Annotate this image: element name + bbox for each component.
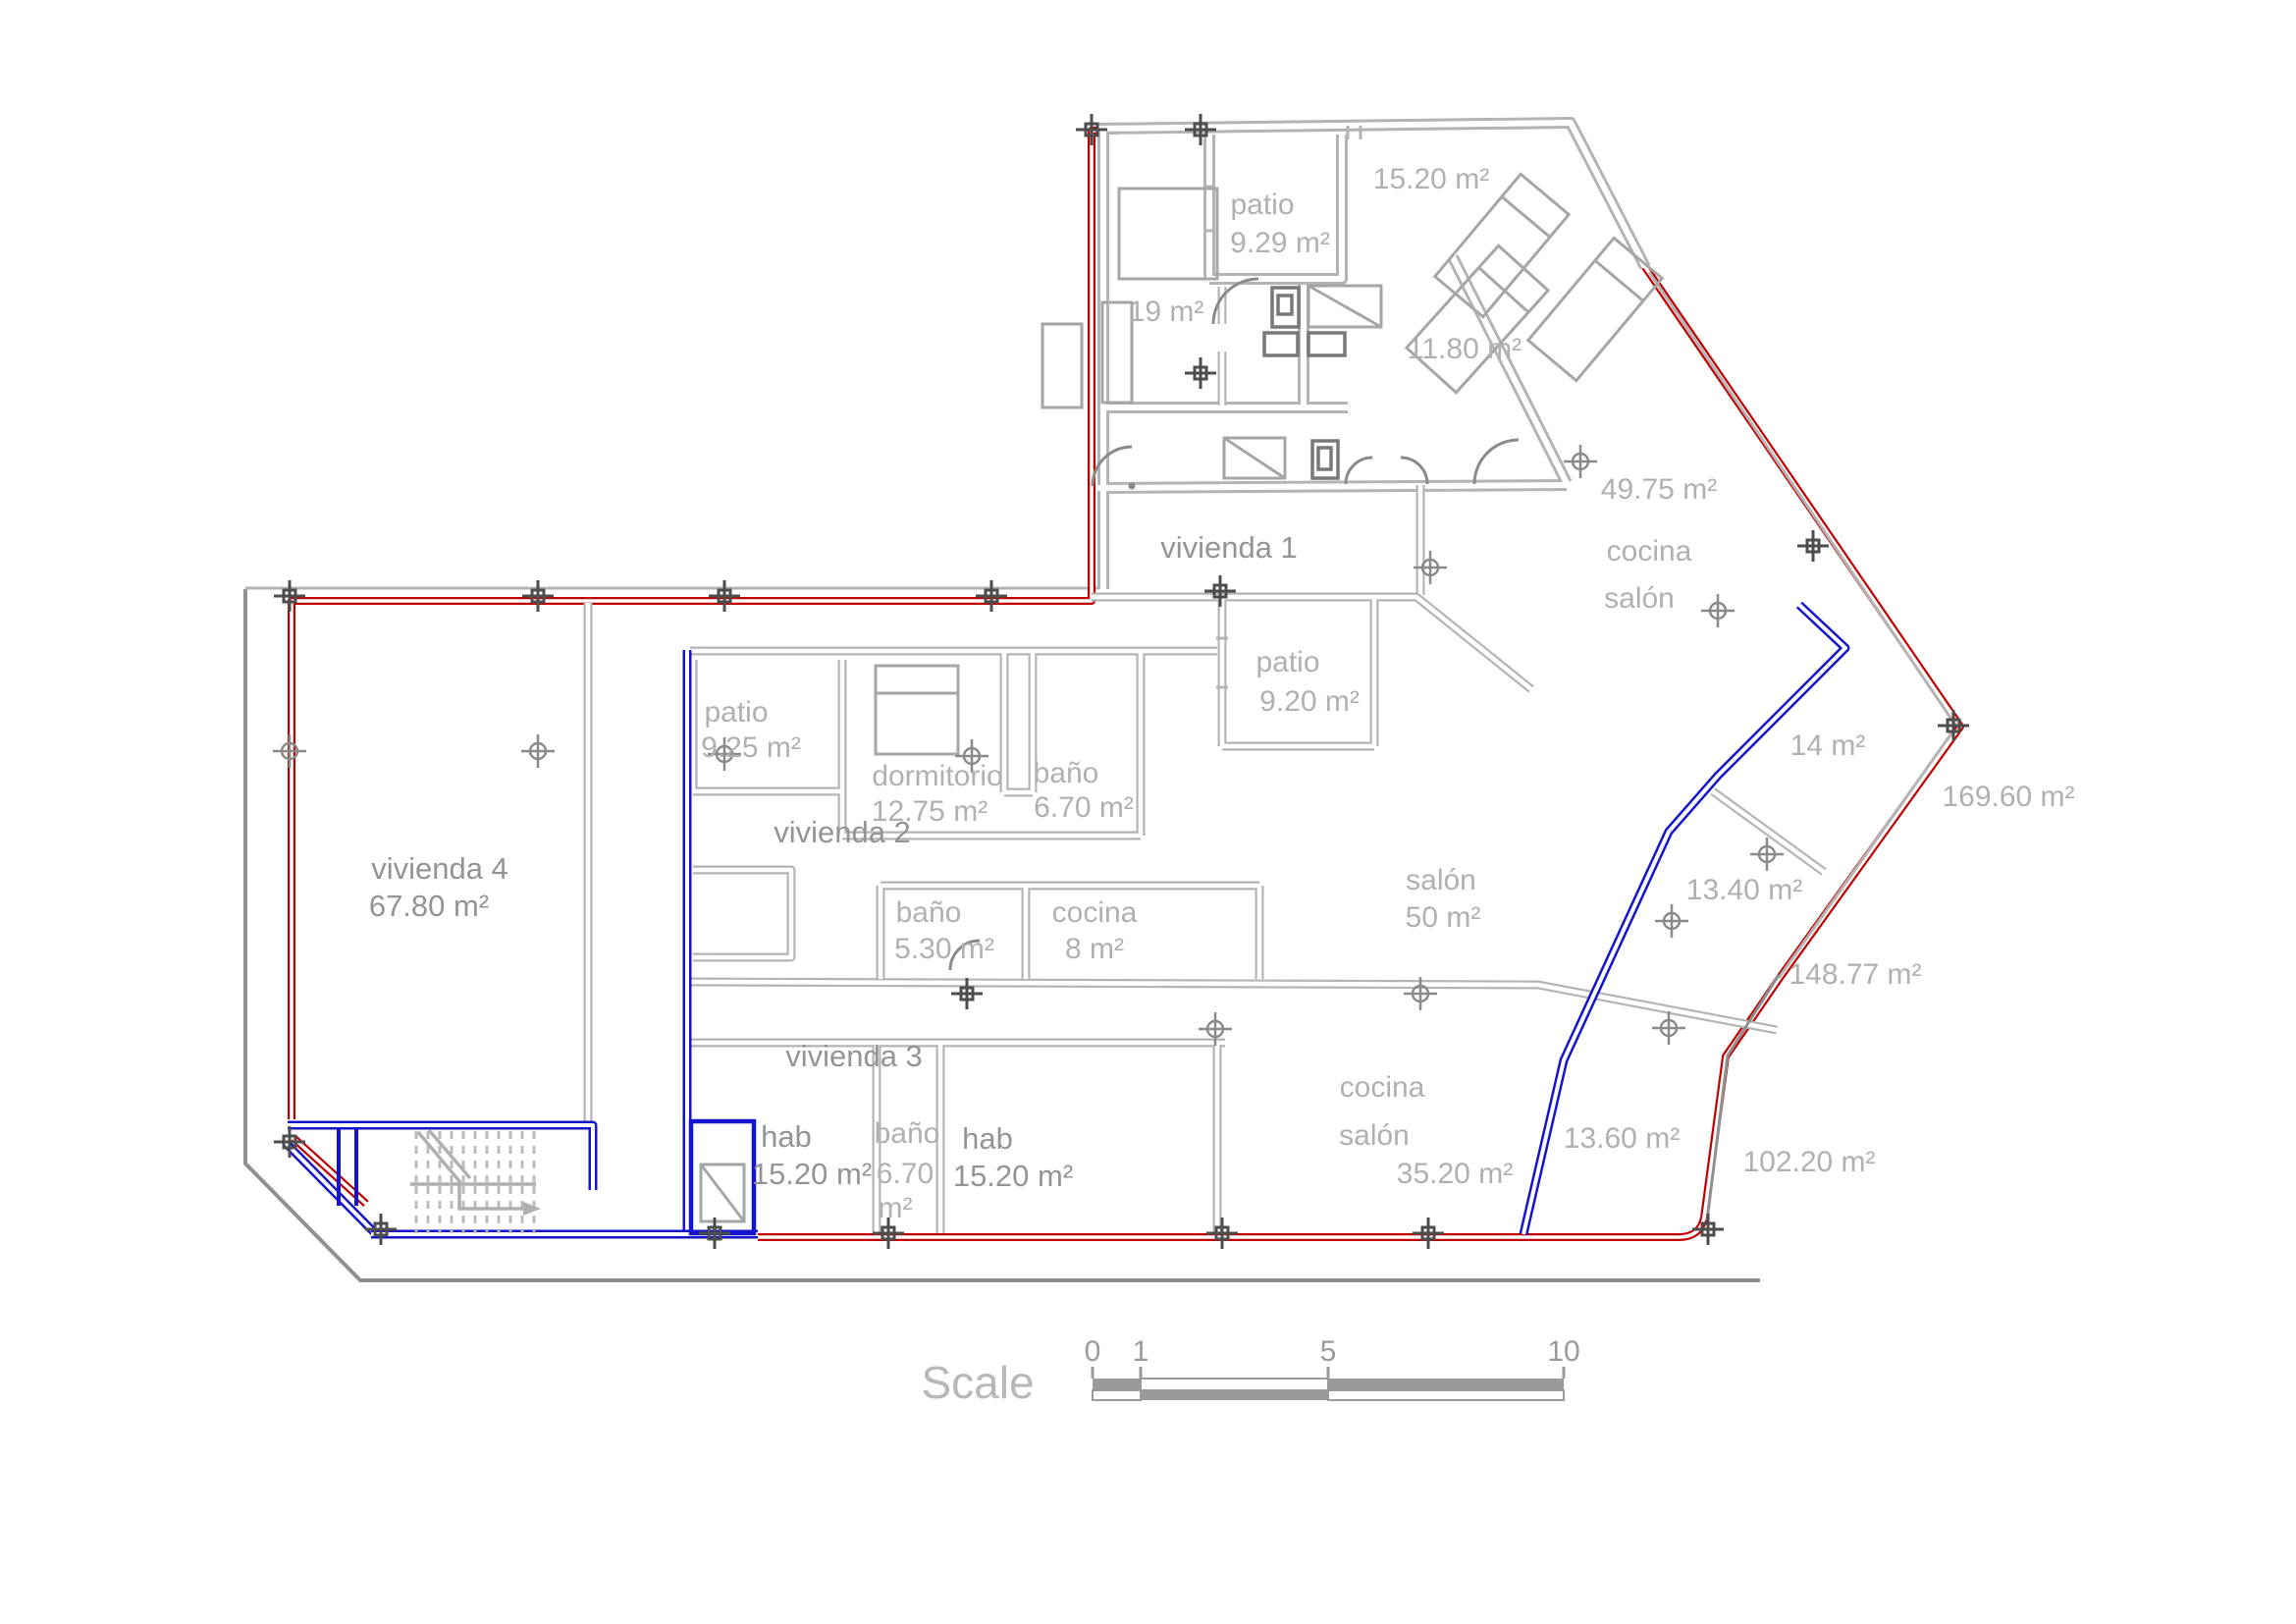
label-salon50-area: 50 m² [1406,901,1481,934]
survey-markers [273,114,1969,1249]
label-parcel-1340: 13.40 m² [1686,874,1802,906]
label-v3-bano: baño [875,1117,940,1150]
label-salon50-name: salón [1406,864,1476,896]
scale-bar: Scale 0 1 5 10 [921,1335,1579,1408]
sink [1264,333,1298,355]
scale-title: Scale [921,1357,1034,1408]
label-v2-dormitorio: dormitorio [872,760,1002,792]
scale-segment [1093,1379,1141,1390]
label-parcel-10220: 102.20 m² [1742,1146,1875,1178]
label-v3-hab1: hab [761,1119,812,1154]
label-v3-salon: salón [1339,1119,1410,1152]
label-v2-patio-area: 9.25 m² [701,731,801,764]
scale-segment [1328,1379,1564,1390]
label-v3-bano-area: 6.70 [877,1158,934,1190]
label-v1-patio2-area: 9.20 m² [1259,685,1360,718]
label-parcel-14877: 148.77 m² [1789,958,1921,991]
room-labels: patio 9.29 m² 15.20 m² 19 m² 11.80 m² 49… [369,163,1866,1224]
label-v1-patio-name: patio [1230,189,1294,221]
label-parcel-16960: 169.60 m² [1942,781,2074,813]
scale-tick-5: 5 [1320,1335,1337,1368]
label-parcel-1360: 13.60 m² [1564,1122,1680,1155]
label-room-14: 14 m² [1790,730,1866,762]
bed [876,666,958,754]
bed-tilted [1407,245,1548,393]
floor-plan-drawing: patio 9.29 m² 15.20 m² 19 m² 11.80 m² 49… [0,0,2296,1624]
label-v1-patio2-name: patio [1255,646,1319,678]
bed [1119,189,1217,279]
label-v2-bano2-area: 5.30 m² [894,933,994,965]
toilet [1272,288,1299,327]
label-v2-bano2: baño [896,896,962,929]
label-v1-area: 49.75 m² [1601,473,1717,506]
scale-tick-1: 1 [1133,1335,1149,1368]
label-v2-patio-name: patio [704,696,768,729]
stair-direction-arrow [523,1202,541,1216]
label-v2-cocina-area: 8 m² [1065,933,1124,965]
label-v3-area: 35.20 m² [1397,1158,1513,1190]
red-perimeter [292,124,1960,1237]
sink [1308,333,1345,355]
scale-segment [1141,1390,1328,1400]
label-v3-hab1-area: 15.20 m² [752,1157,872,1191]
scale-tick-0: 0 [1085,1335,1101,1368]
duct [1042,324,1082,407]
label-v3-hab2-area: 15.20 m² [953,1159,1073,1193]
label-room-1180: 11.80 m² [1408,333,1522,365]
label-vivienda-1: vivienda 1 [1160,530,1298,565]
floor-plan-canvas: patio 9.29 m² 15.20 m² 19 m² 11.80 m² 49… [0,0,2296,1624]
label-v2-cocina: cocina [1052,896,1138,929]
label-v3-cocina: cocina [1340,1071,1425,1104]
label-v2-bano-area: 6.70 m² [1034,791,1134,824]
scale-segment [1141,1379,1328,1390]
parcel-labels: 169.60 m² 13.40 m² 148.77 m² 13.60 m² 10… [1564,781,2075,1178]
label-vivienda-4: vivienda 4 [371,851,508,886]
label-vivienda-3: vivienda 3 [785,1039,923,1073]
elevator-shaft [691,1121,754,1233]
label-vivienda-2: vivienda 2 [774,815,911,849]
label-room-1520: 15.20 m² [1373,163,1489,195]
label-v1-patio-area: 9.29 m² [1230,227,1330,259]
label-v3-bano-unit: m² [879,1192,913,1224]
label-v1-cocina: cocina [1607,535,1692,568]
label-v3-hab2: hab [962,1121,1013,1156]
scale-tick-10: 10 [1547,1335,1579,1368]
label-room-19: 19 m² [1129,296,1204,328]
scale-segment [1328,1390,1564,1400]
scale-segment [1093,1390,1141,1400]
label-v1-salon: salón [1604,582,1675,615]
label-v2-bano: baño [1034,757,1099,789]
label-vivienda-4-area: 67.80 m² [369,889,489,923]
stairs [410,1130,541,1233]
